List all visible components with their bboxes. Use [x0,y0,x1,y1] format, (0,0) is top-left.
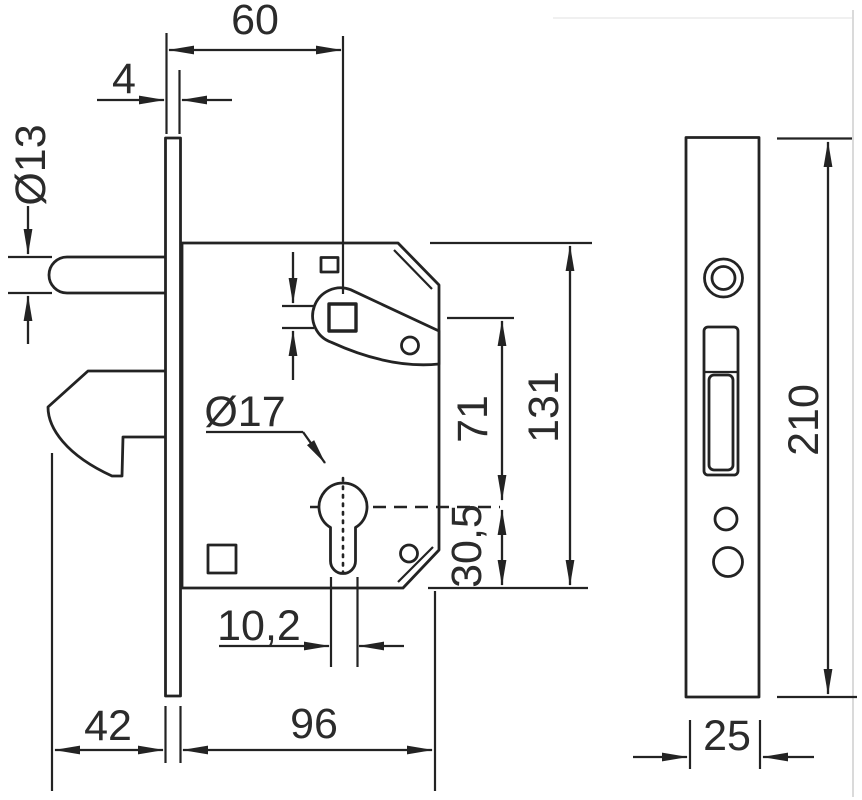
faceplate-side [166,138,181,696]
dim-follower-to-cylinder-label: 71 [449,395,497,443]
dim-pin-diameter-label: Ø13 [7,124,55,205]
dim-backset-label: 60 [231,0,279,44]
dimension-hook-projection: 42 [52,453,181,791]
dimension-faceplate-thickness: 4 [97,55,232,134]
faceplate-front [686,138,759,698]
dimension-faceplate-height: 210 [777,139,857,698]
dim-cylinder-to-bottom-label: 30,5 [443,504,491,588]
dimension-pin-diameter: Ø13 [7,124,55,344]
dim-faceplate-width-label: 25 [703,712,751,760]
dim-stem-width-label: 10,2 [217,602,301,650]
dimension-cylinder-to-bottom: 30,5 [443,504,502,588]
dimension-faceplate-width: 25 [633,712,814,769]
dim-faceplate-height-label: 210 [780,384,828,456]
dim-thickness-label: 4 [112,55,136,103]
dim-case-height-label: 131 [520,371,568,443]
front-view [686,138,759,698]
dim-case-depth-label: 96 [290,700,338,748]
dim-hook-projection-label: 42 [84,702,132,750]
lock-dimension-diagram: 60 4 Ø13 Ø17 131 71 30,5 [0,0,862,800]
follower-square-hole [329,304,356,331]
cam-rivet-hole [402,337,419,354]
technical-drawing: 60 4 Ø13 Ø17 131 71 30,5 [0,0,862,800]
bottom-square-hole [208,545,236,573]
dimension-stem-width: 10,2 [217,577,404,667]
dimension-follower-to-cylinder: 71 [447,318,514,500]
top-square-hole [321,258,338,273]
hook-bolt [48,371,169,476]
case-rivet-hole-bottom [401,545,418,562]
round-pin-bolt [49,257,169,293]
dim-cylinder-diameter-label: Ø17 [204,388,285,436]
